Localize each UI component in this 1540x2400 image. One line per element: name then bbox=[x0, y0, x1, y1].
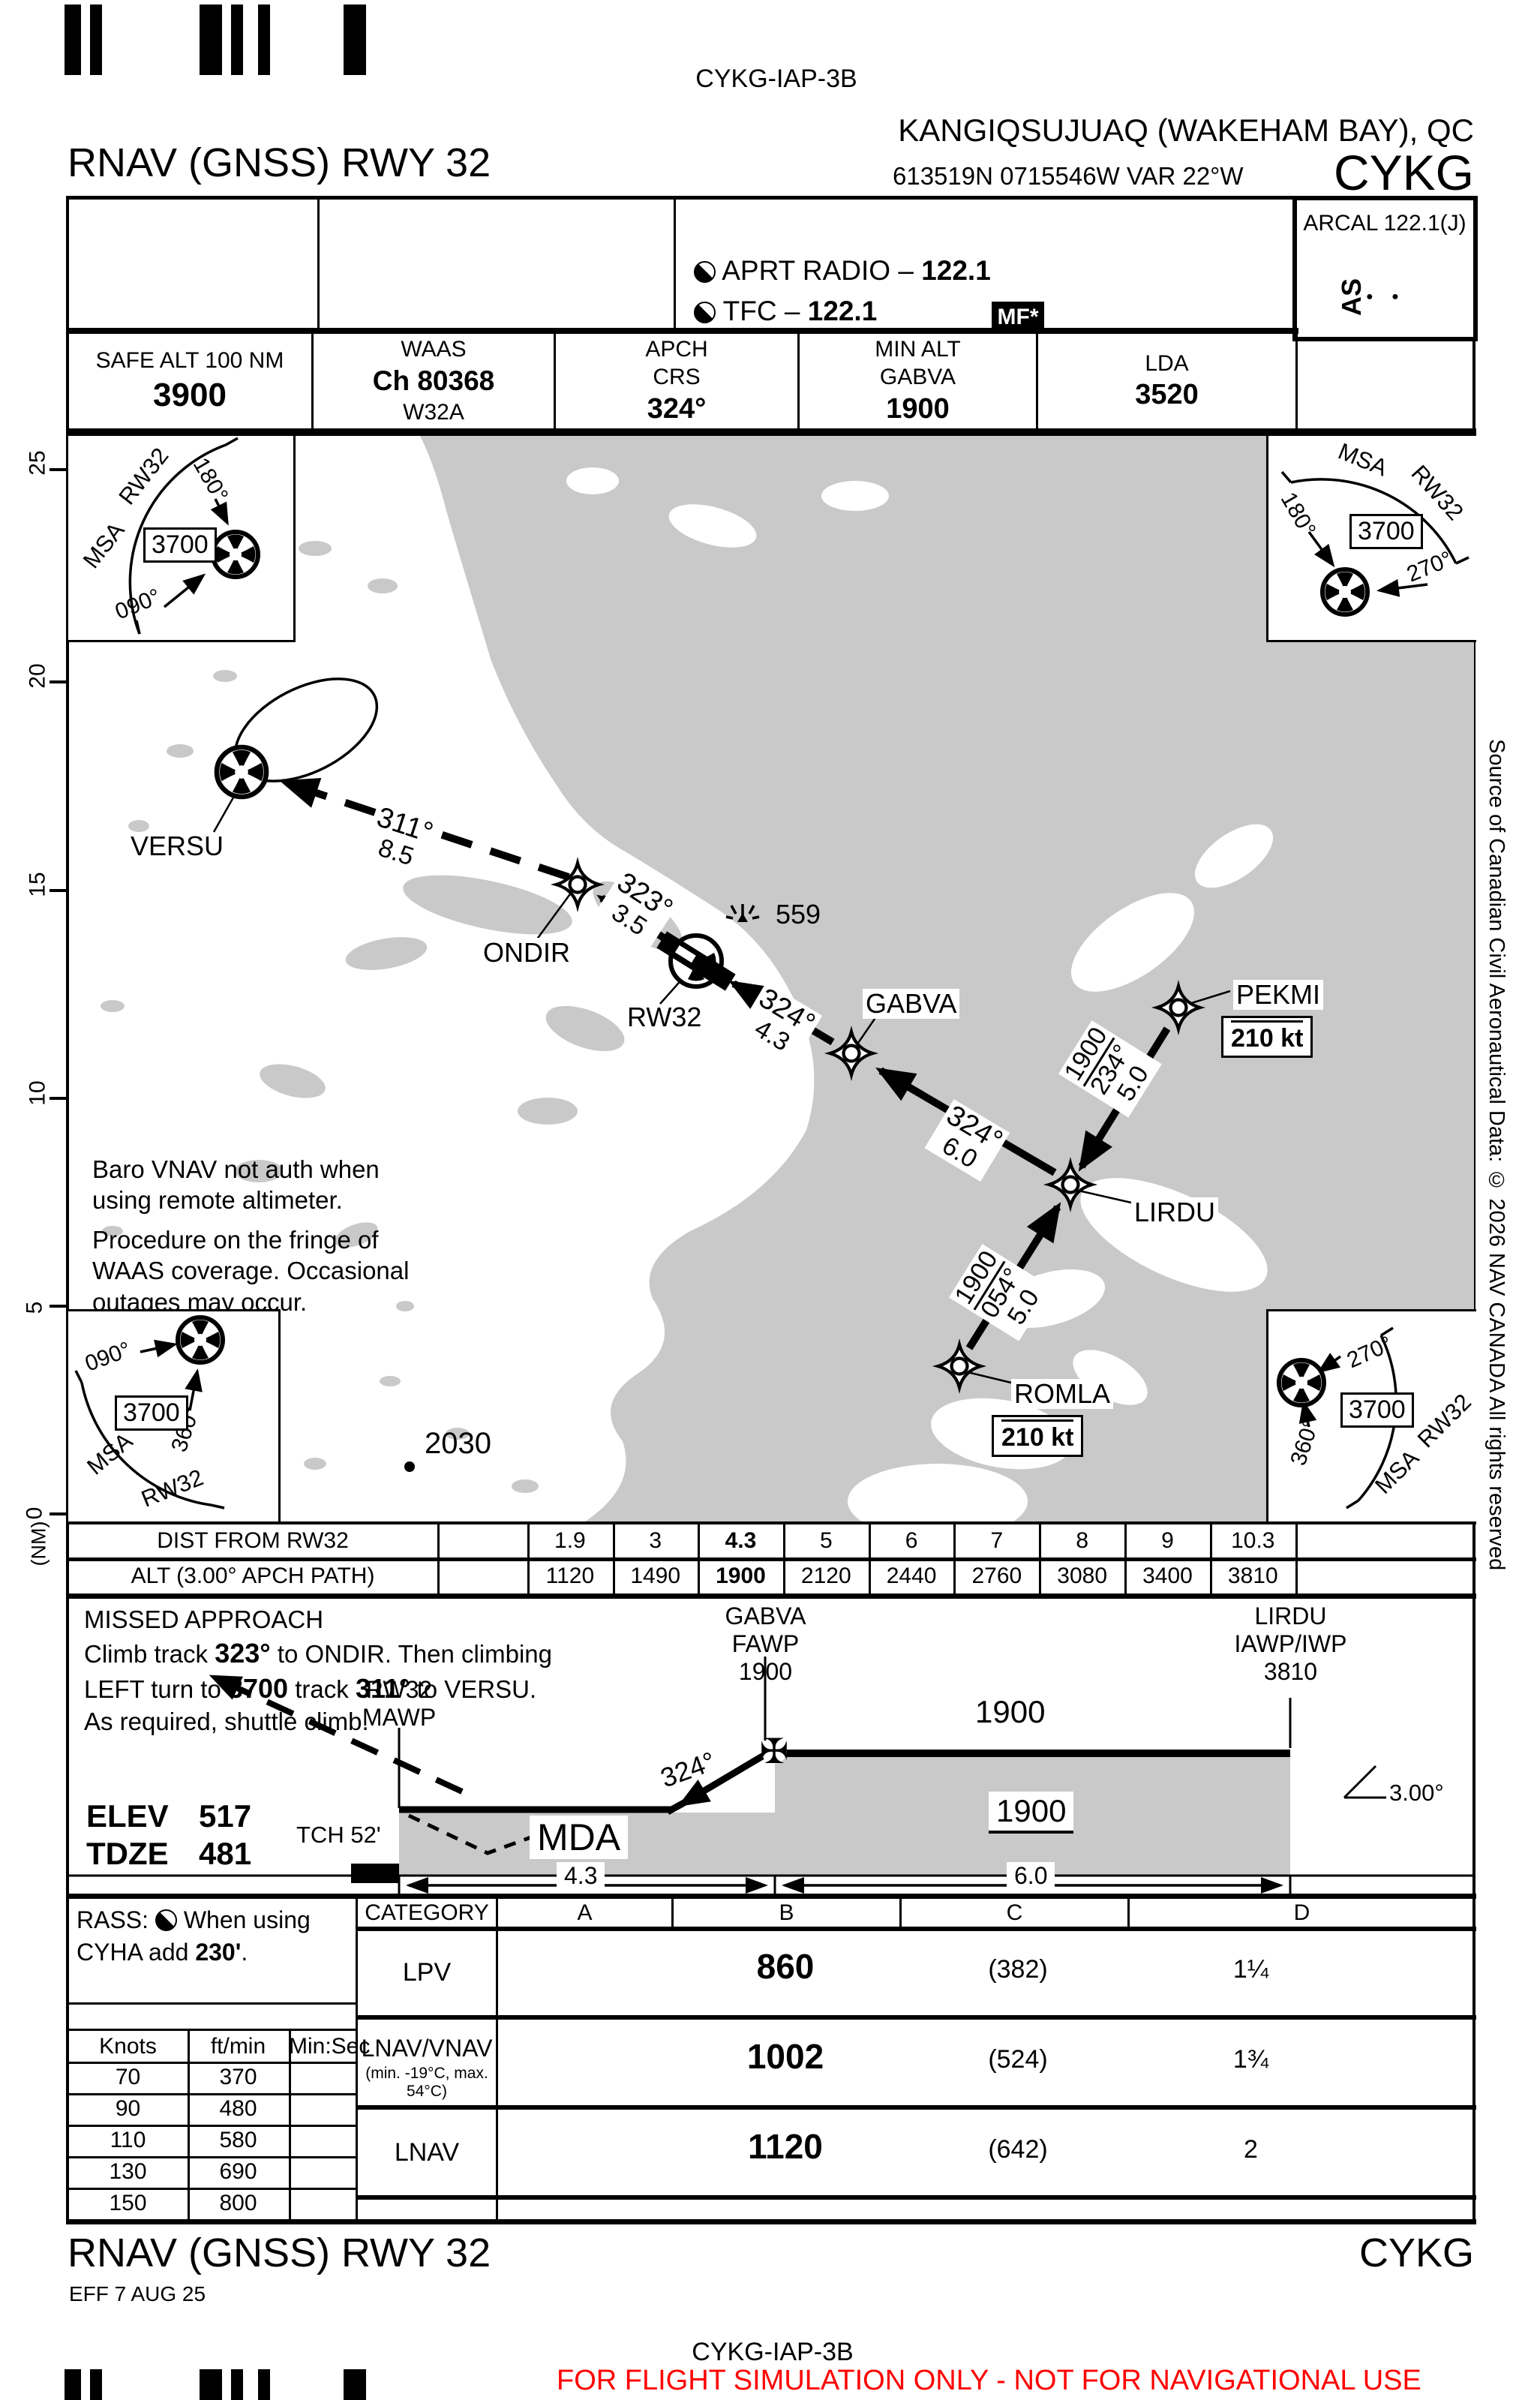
missed-approach-title: MISSED APPROACH bbox=[84, 1604, 594, 1636]
minima-category-label: CATEGORY bbox=[358, 1900, 496, 1926]
dist-cell: 5 bbox=[783, 1528, 869, 1554]
segment-altitude-label: 1900 bbox=[975, 1694, 1045, 1730]
tch-label: TCH 52' bbox=[296, 1822, 381, 1849]
chart-id-top: CYKG-IAP-3B bbox=[645, 65, 908, 94]
nm-25: 25 bbox=[26, 450, 51, 475]
arcal-morse-dots: ● ● bbox=[1366, 290, 1406, 304]
obstacle-559-label: 559 bbox=[776, 899, 821, 930]
minima-lnav-label: LNAV bbox=[358, 2138, 496, 2167]
min-alt-value: 1900 bbox=[886, 392, 950, 428]
iawp-label: LIRDU IAWP/IWP 3810 bbox=[1221, 1603, 1360, 1685]
dist-cell: 3 bbox=[613, 1528, 698, 1554]
comm-box: APRT RADIO – 122.1 TFC – 122.1 bbox=[694, 251, 991, 331]
glide-angle-label: 3.00° bbox=[1389, 1780, 1444, 1807]
dist-cell: 10.3 bbox=[1210, 1528, 1295, 1554]
mf-tag: MF* bbox=[992, 302, 1044, 333]
safe-alt-box: SAFE ALT 100 NM 3900 bbox=[69, 334, 311, 428]
lda-value: 3520 bbox=[1135, 377, 1199, 413]
footer-icao: CYKG bbox=[1275, 2230, 1474, 2276]
procedure-title: RNAV (GNSS) RWY 32 bbox=[68, 140, 491, 186]
nm-15: 15 bbox=[26, 872, 51, 897]
dist-cell: 7 bbox=[954, 1528, 1040, 1554]
romla-speed-value: 210 kt bbox=[1001, 1419, 1073, 1452]
min-alt-fix: GABVA bbox=[880, 363, 956, 392]
alt-cell: 3400 bbox=[1125, 1563, 1211, 1589]
romla-label: ROMLA bbox=[1011, 1379, 1113, 1409]
msa-box-top-right: MSA RW32 3700 180° 270° bbox=[1266, 436, 1476, 642]
alt-cell: 3080 bbox=[1040, 1563, 1125, 1589]
safe-alt-value: 3900 bbox=[153, 374, 227, 416]
icao-code-top: CYKG bbox=[1249, 144, 1474, 201]
rass-text2: add bbox=[149, 1939, 195, 1966]
simulation-disclaimer: FOR FLIGHT SIMULATION ONLY - NOT FOR NAV… bbox=[557, 2365, 1421, 2397]
missed-approach-text: MISSED APPROACH Climb track 323° to ONDI… bbox=[84, 1604, 594, 1738]
part-time-icon bbox=[694, 302, 716, 323]
apt-radio-freq: 122.1 bbox=[921, 255, 991, 286]
rate-header-ftmin: ft/min bbox=[188, 2034, 289, 2059]
minima-lnavvnav-da: 1002 bbox=[722, 2036, 849, 2077]
runway-profile-bar bbox=[351, 1864, 399, 1883]
alt-row-label: ALT (3.00° APCH PATH) bbox=[68, 1563, 437, 1589]
tfc-freq: 122.1 bbox=[808, 296, 878, 326]
dist-cell: 1.9 bbox=[527, 1528, 613, 1554]
mda-label: MDA bbox=[530, 1816, 628, 1859]
descent-rate-table: Knots ft/min Min:Sec 70 370 90 480 110 5… bbox=[68, 2031, 356, 2219]
rate-cell: 70 bbox=[68, 2065, 188, 2090]
msa-tl-alt: 3700 bbox=[143, 527, 217, 563]
rate-cell: 130 bbox=[68, 2159, 188, 2185]
note-waas-fringe: Procedure on the fringe of WAAS coverage… bbox=[92, 1224, 409, 1317]
minima-lpv-hat: (382) bbox=[965, 1955, 1070, 1984]
rate-cell: 580 bbox=[188, 2128, 289, 2153]
minima-cat-d: D bbox=[1130, 1900, 1474, 1926]
minima-cat-c: C bbox=[902, 1900, 1127, 1926]
part-time-icon bbox=[694, 261, 716, 283]
lda-label: LDA bbox=[1145, 350, 1188, 378]
msa-bl-alt: 3700 bbox=[115, 1395, 188, 1431]
chart-id-bottom: CYKG-IAP-3B bbox=[660, 2338, 885, 2367]
alt-cell: 1120 bbox=[527, 1563, 613, 1589]
rate-cell: 90 bbox=[68, 2096, 188, 2122]
minima-lnav-da: 1120 bbox=[722, 2126, 849, 2167]
msa-box-bottom-right: 270° 360° 3700 MSA RW32 bbox=[1266, 1309, 1476, 1524]
minima-lnavvnav-hat: (524) bbox=[965, 2045, 1070, 2074]
apch-label: APCH bbox=[645, 335, 707, 364]
minima-cat-a: A bbox=[498, 1900, 671, 1926]
copyright-sidenote: Source of Canadian Civil Aeronautical Da… bbox=[1484, 739, 1508, 1699]
alt-cell: 2760 bbox=[954, 1563, 1040, 1589]
msa-br-alt: 3700 bbox=[1340, 1392, 1414, 1428]
minima-lnavvnav-label: LNAV/VNAV bbox=[358, 2035, 496, 2062]
minima-lnav-vis: 2 bbox=[1219, 2135, 1283, 2164]
rate-cell: 150 bbox=[68, 2191, 188, 2216]
fawp-label: GABVA FAWP 1900 bbox=[711, 1603, 820, 1685]
waas-label: WAAS bbox=[401, 335, 466, 364]
arcal-freq: ARCAL 122.1(J) bbox=[1301, 211, 1468, 236]
msa-box-top-left: MSA RW32 3700 180° 090° bbox=[68, 436, 296, 642]
footer-procedure-title: RNAV (GNSS) RWY 32 bbox=[68, 2230, 491, 2276]
minima-cat-b: B bbox=[674, 1900, 899, 1926]
tfc-label: TFC – bbox=[723, 296, 808, 326]
city-name: KANGIQSUJUAQ (WAKEHAM BAY), QC bbox=[874, 113, 1474, 149]
romla-speed-restriction: 210 kt bbox=[992, 1415, 1083, 1457]
rate-cell: 800 bbox=[188, 2191, 289, 2216]
nm-0: 0 bbox=[22, 1507, 47, 1520]
rate-cell: 690 bbox=[188, 2159, 289, 2185]
rass-add-value: 230' bbox=[195, 1939, 241, 1966]
apt-radio-label: APRT RADIO – bbox=[722, 255, 921, 286]
apch-crs-box: APCH CRS 324° bbox=[556, 334, 797, 428]
rass-period: . bbox=[241, 1939, 248, 1966]
dist-row-label: DIST FROM RW32 bbox=[68, 1528, 437, 1554]
dist-cell: 9 bbox=[1125, 1528, 1211, 1554]
airport-elevation: ELEV517 TDZE481 bbox=[86, 1798, 251, 1872]
lda-box: LDA 3520 bbox=[1038, 334, 1295, 428]
dim-final-segment: 4.3 bbox=[557, 1862, 605, 1890]
rw32-label: RW32 bbox=[624, 1002, 704, 1032]
rate-cell: 480 bbox=[188, 2096, 289, 2122]
gabva-label: GABVA bbox=[863, 989, 959, 1019]
min-alt-label: MIN ALT bbox=[875, 335, 960, 364]
arcal-ident: AS bbox=[1336, 278, 1367, 316]
crs-label: CRS bbox=[653, 363, 700, 392]
ondir-waypoint-icon bbox=[557, 864, 599, 906]
dist-cell-faf: 4.3 bbox=[698, 1528, 784, 1554]
lirdu-label: LIRDU bbox=[1131, 1197, 1218, 1227]
waas-ident: W32A bbox=[403, 398, 464, 427]
pekmi-label: PEKMI bbox=[1233, 980, 1323, 1010]
minima-lnavvnav-temp: (min. -19°C, max. 54°C) bbox=[353, 2065, 501, 2101]
effective-date: EFF 7 AUG 25 bbox=[69, 2282, 206, 2306]
minima-lpv-vis: 1¼ bbox=[1219, 1955, 1283, 1984]
rate-cell: 110 bbox=[68, 2128, 188, 2153]
pekmi-speed-value: 210 kt bbox=[1231, 1020, 1303, 1053]
nm-10: 10 bbox=[26, 1080, 51, 1105]
ondir-label: ONDIR bbox=[480, 938, 573, 968]
minima-lnavvnav-vis: 1¾ bbox=[1219, 2045, 1283, 2074]
minima-lpv-da: 860 bbox=[722, 1946, 849, 1987]
part-time-icon bbox=[155, 1909, 177, 1931]
alt-cell: 2120 bbox=[783, 1563, 869, 1589]
nm-unit-label: (NM) bbox=[27, 1521, 50, 1566]
alt-cell: 3810 bbox=[1210, 1563, 1295, 1589]
versu-label: VERSU bbox=[128, 831, 227, 861]
rate-header-knots: Knots bbox=[68, 2034, 188, 2059]
note-baro-vnav: Baro VNAV not auth when using remote alt… bbox=[92, 1154, 380, 1216]
msa-tr-alt: 3700 bbox=[1349, 514, 1423, 549]
mda-altitude-label: 1900 bbox=[989, 1792, 1073, 1834]
waas-channel: Ch 80368 bbox=[373, 364, 495, 398]
spot-elevation-label: 2030 bbox=[425, 1427, 491, 1461]
safe-alt-label: SAFE ALT 100 NM bbox=[96, 347, 284, 375]
distance-altitude-table: DIST FROM RW32 1.9 3 4.3 5 6 7 8 9 10.3 … bbox=[68, 1524, 1474, 1594]
alt-cell: 1490 bbox=[613, 1563, 698, 1589]
apch-crs-value: 324° bbox=[647, 392, 707, 428]
arcal-box: ARCAL 122.1(J) AS ● ● bbox=[1292, 196, 1478, 341]
alt-cell: 2440 bbox=[869, 1563, 954, 1589]
rass-note: RASS: When using CYHA add 230'. bbox=[77, 1904, 354, 1969]
alt-cell-faf: 1900 bbox=[698, 1563, 784, 1589]
minima-lnav-hat: (642) bbox=[965, 2135, 1070, 2164]
versu-waypoint-icon bbox=[217, 747, 266, 797]
pekmi-speed-restriction: 210 kt bbox=[1221, 1016, 1313, 1058]
faf-maltese-cross-icon: ✠ bbox=[760, 1732, 789, 1771]
waas-box: WAAS Ch 80368 W32A bbox=[314, 334, 554, 428]
mawp-label: RW32 MAWP bbox=[347, 1676, 452, 1732]
dist-cell: 8 bbox=[1040, 1528, 1125, 1554]
rate-cell: 370 bbox=[188, 2065, 289, 2090]
airport-position: 613519N 0715546W VAR 22°W bbox=[893, 162, 1244, 191]
dist-cell: 6 bbox=[869, 1528, 954, 1554]
minima-lpv-label: LPV bbox=[358, 1958, 496, 1987]
spot-elevation-dot bbox=[404, 1461, 415, 1472]
nm-5: 5 bbox=[22, 1302, 47, 1314]
min-alt-box: MIN ALT GABVA 1900 bbox=[800, 334, 1036, 428]
approach-chart-page: CYKG-IAP-3B KANGIQSUJUAQ (WAKEHAM BAY), … bbox=[0, 0, 1540, 2400]
rw32-runway-waypoint-icon bbox=[656, 931, 735, 990]
nm-20: 20 bbox=[26, 663, 51, 688]
dim-intermediate-segment: 6.0 bbox=[1007, 1862, 1055, 1890]
msa-box-bottom-left: 090° 360° 3700 MSA RW32 bbox=[68, 1309, 281, 1524]
rate-header-minsec: Min:Sec bbox=[289, 2034, 356, 2059]
rass-label: RASS: bbox=[77, 1906, 149, 1933]
